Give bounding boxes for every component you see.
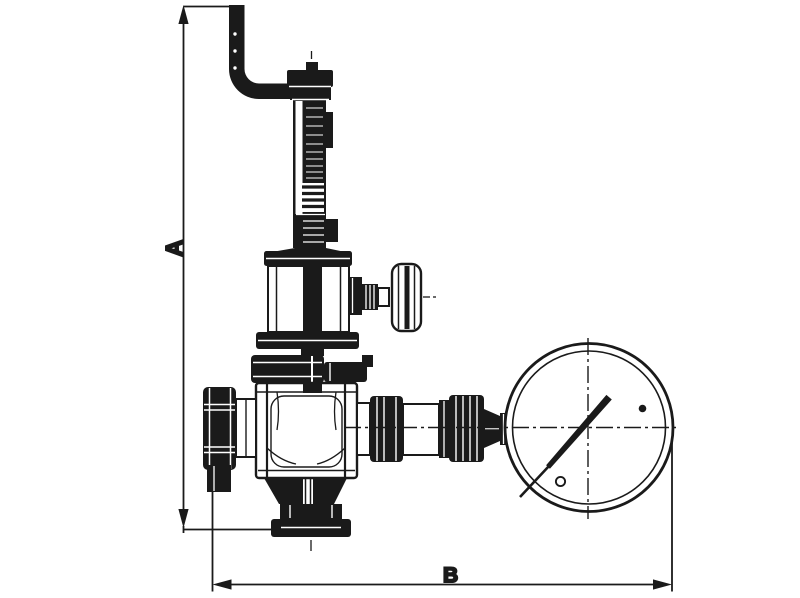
svg-text:B: B	[443, 564, 458, 587]
svg-text:A: A	[161, 240, 187, 257]
